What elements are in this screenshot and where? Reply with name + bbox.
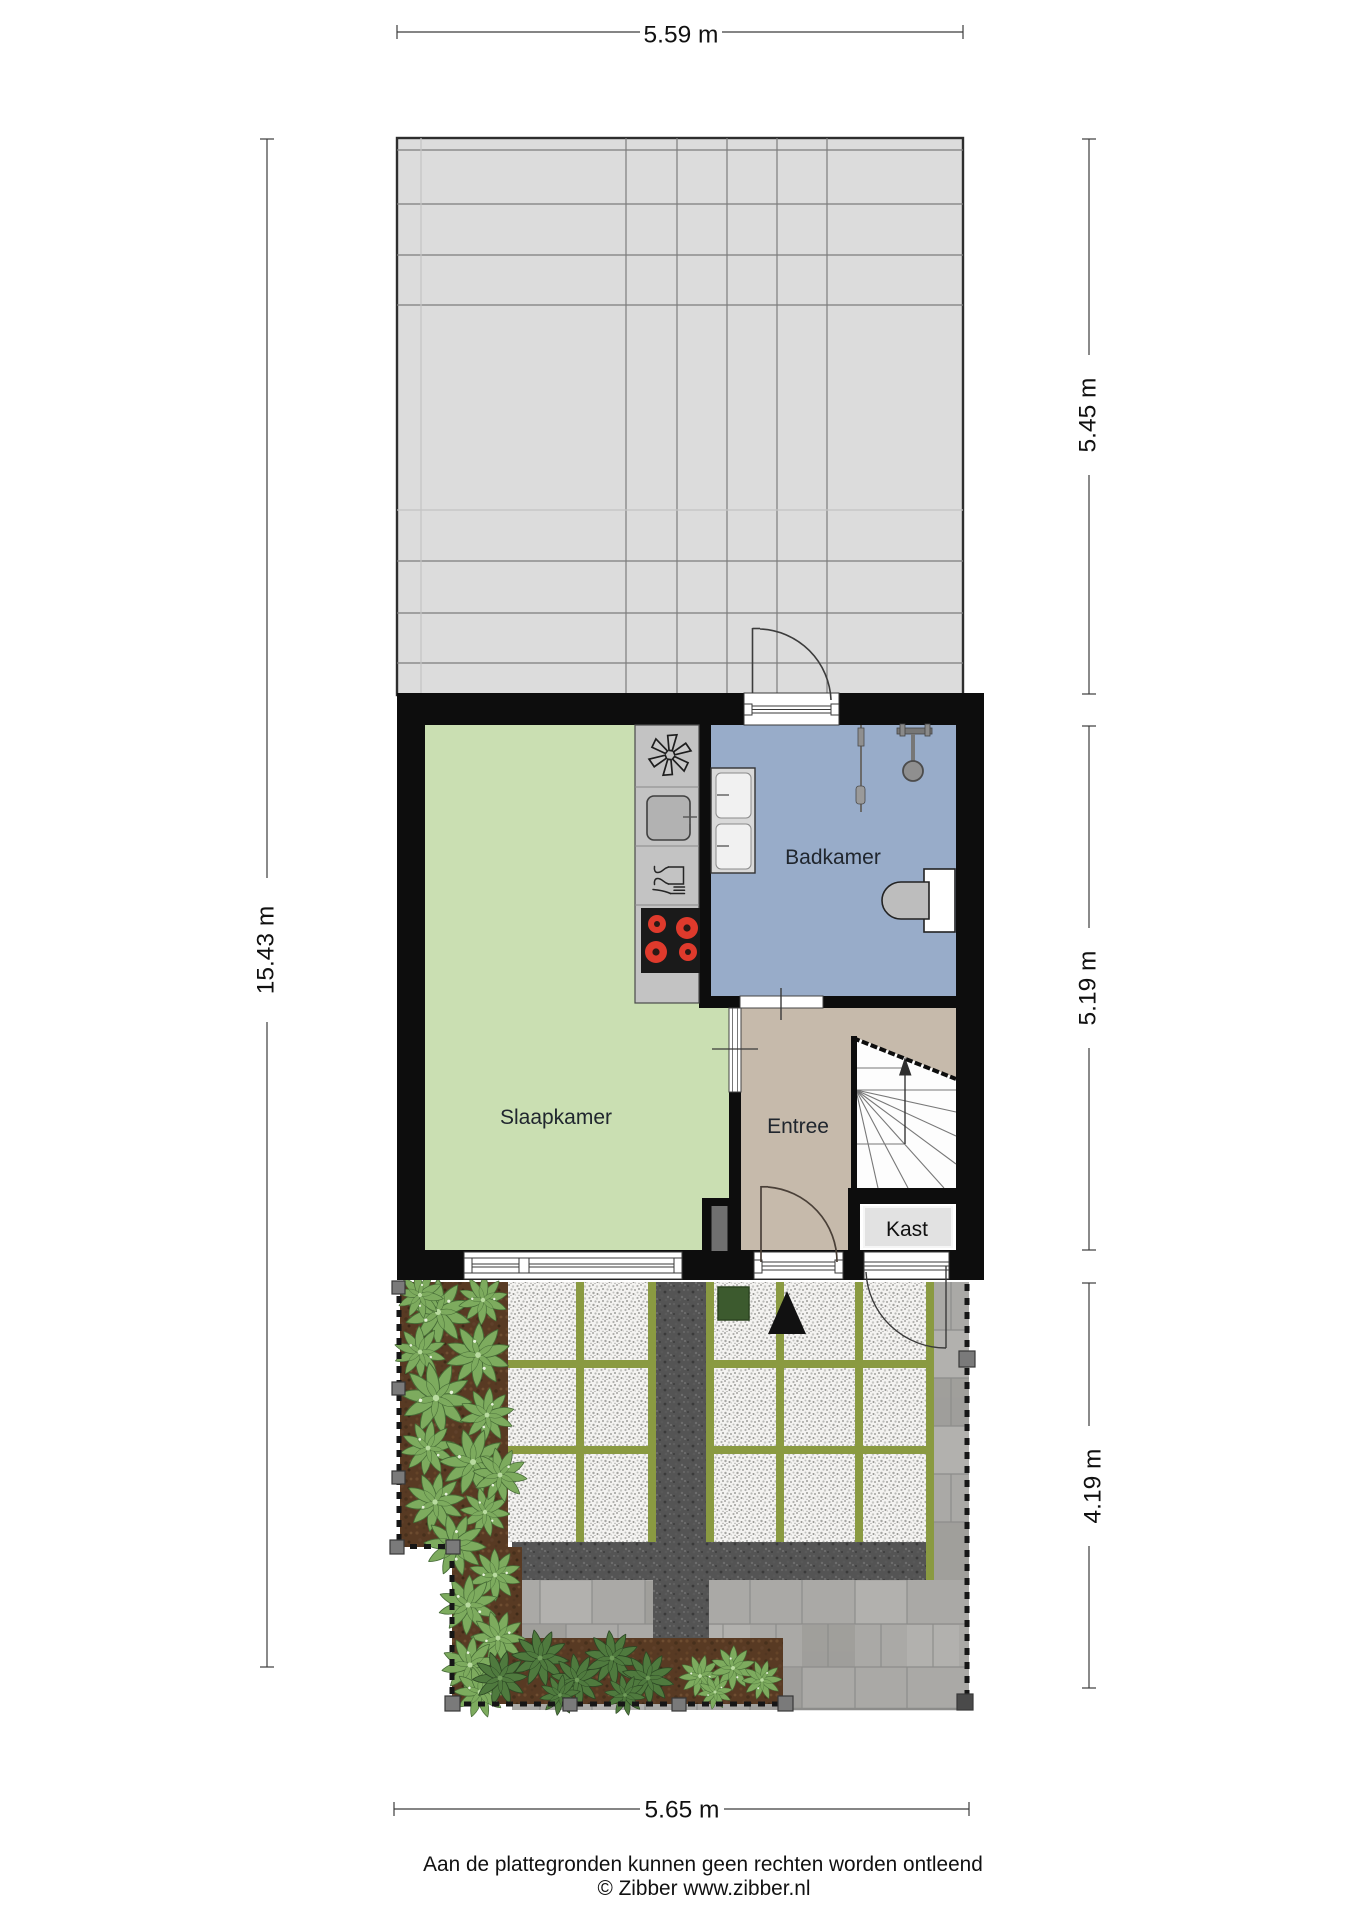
svg-text:Aan de plattegronden kunnen ge: Aan de plattegronden kunnen geen rechten…	[423, 1853, 983, 1876]
svg-text:15.43 m: 15.43 m	[252, 906, 279, 995]
svg-text:© Zibber www.zibber.nl: © Zibber www.zibber.nl	[598, 1877, 811, 1900]
svg-text:5.59 m: 5.59 m	[644, 22, 719, 49]
svg-text:Entree: Entree	[767, 1115, 829, 1138]
svg-text:4.19 m: 4.19 m	[1079, 1449, 1106, 1524]
svg-text:Badkamer: Badkamer	[785, 846, 881, 869]
svg-text:Kast: Kast	[886, 1218, 928, 1241]
svg-text:5.65 m: 5.65 m	[645, 1797, 720, 1824]
svg-text:Slaapkamer: Slaapkamer	[500, 1106, 612, 1129]
svg-text:5.19 m: 5.19 m	[1074, 951, 1101, 1026]
svg-text:5.45 m: 5.45 m	[1074, 378, 1101, 453]
